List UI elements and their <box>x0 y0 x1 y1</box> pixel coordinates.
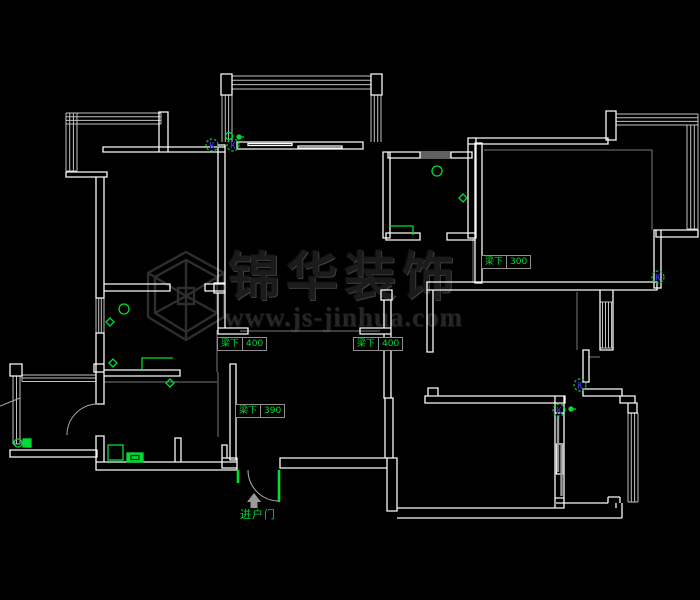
beam-height-label: 梁下390 <box>235 404 285 418</box>
beam-height-label: 梁下300 <box>481 255 531 269</box>
beam-height-label: 梁下400 <box>353 337 403 351</box>
beam-height-label: 梁下400 <box>217 337 267 351</box>
annotation-labels: 梁下300梁下400梁下400梁下390 进户门 <box>0 0 700 600</box>
cad-floorplan-canvas[interactable]: 锦华装饰 www.js-jinhua.com <box>0 0 700 600</box>
entry-door-label: 进户门 <box>240 506 276 522</box>
